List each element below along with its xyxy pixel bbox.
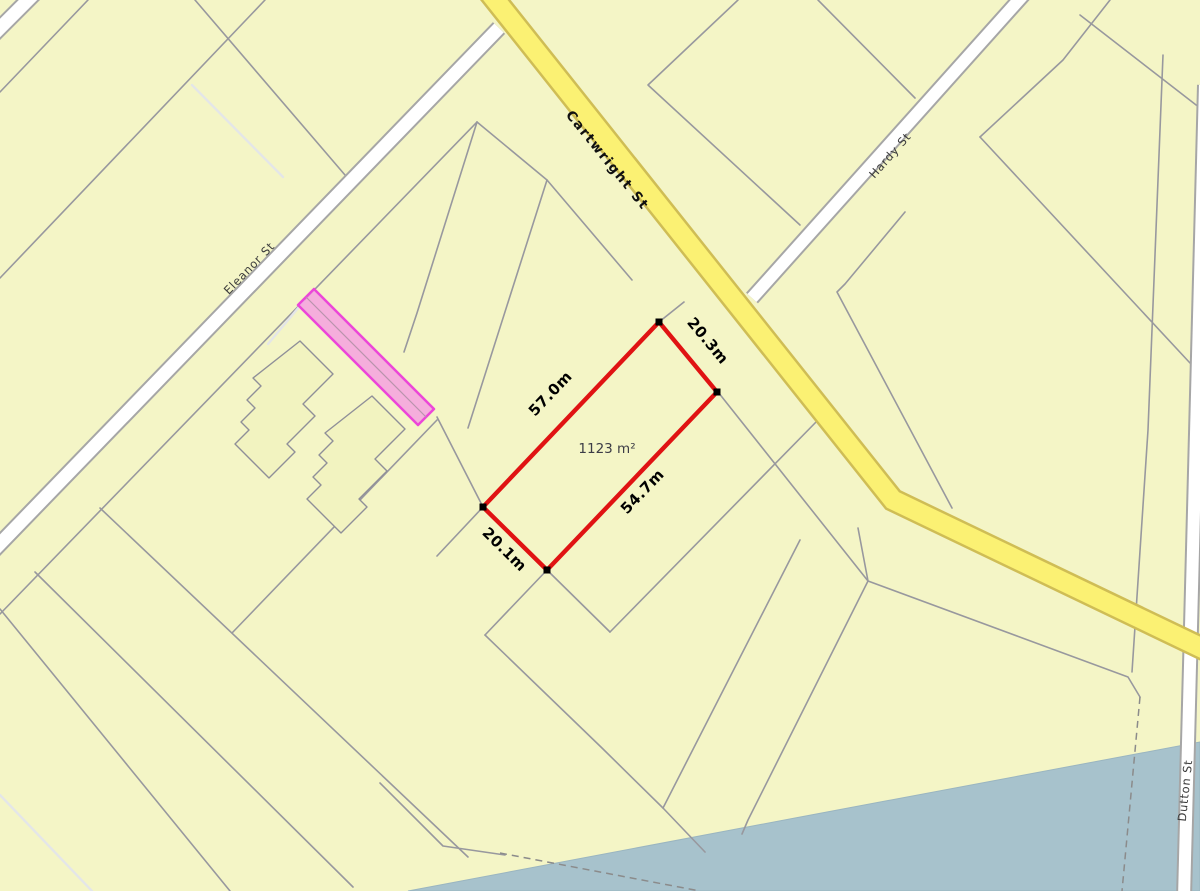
- map-canvas[interactable]: Cartwright St Eleanor St Hardy St Dutton…: [0, 0, 1200, 891]
- map-viewport[interactable]: Cartwright St Eleanor St Hardy St Dutton…: [0, 0, 1200, 891]
- plot-area-label: 1123 m²: [578, 441, 635, 457]
